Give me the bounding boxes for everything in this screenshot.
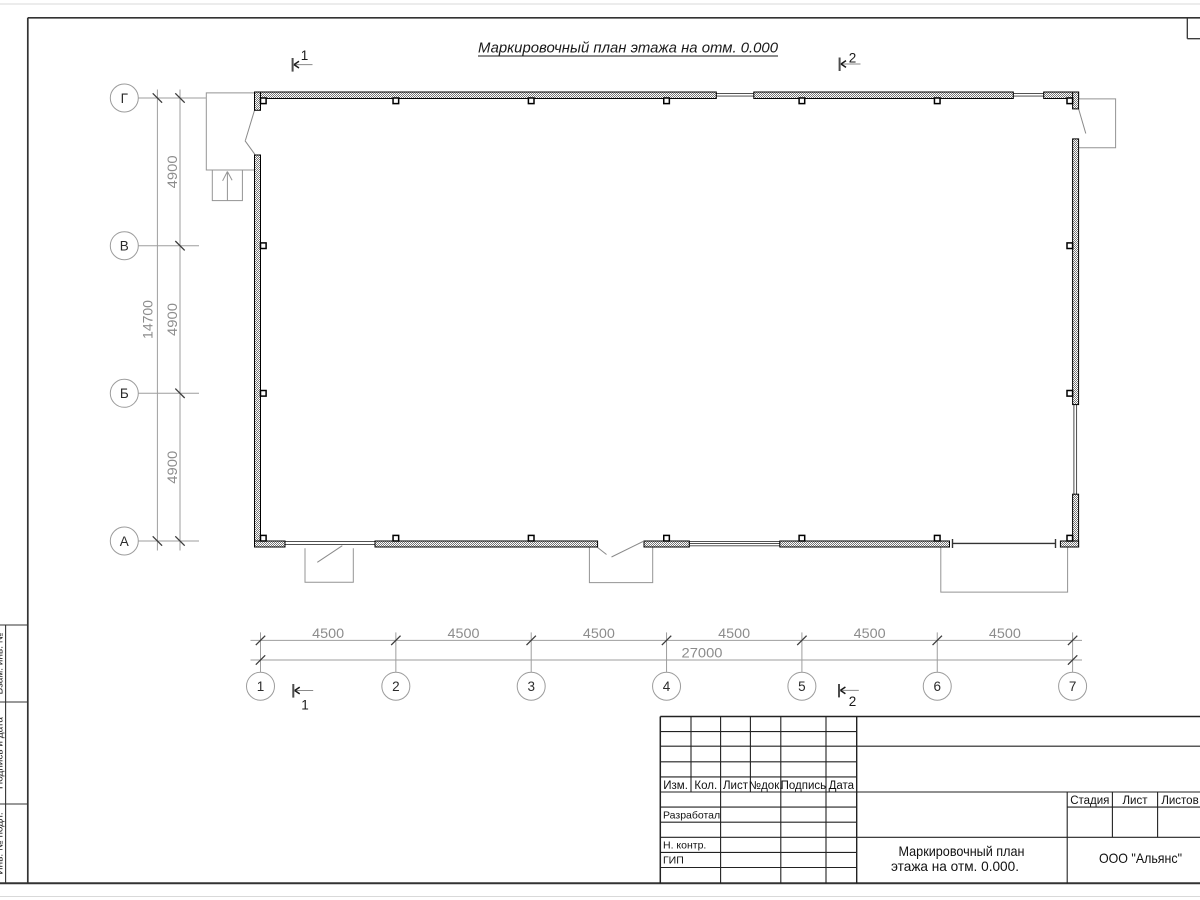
svg-text:5: 5: [798, 679, 806, 694]
svg-text:Лист: Лист: [723, 780, 749, 792]
svg-text:Маркировочный план этажа на от: Маркировочный план этажа на отм. 0.000: [478, 40, 779, 57]
svg-text:6: 6: [933, 679, 941, 694]
svg-text:Б: Б: [120, 386, 129, 401]
svg-text:4: 4: [663, 679, 671, 694]
svg-text:Инв. № подл.: Инв. № подл.: [0, 812, 6, 874]
svg-text:Стадия: Стадия: [1070, 795, 1109, 807]
svg-text:3: 3: [527, 679, 535, 694]
svg-text:№док.: №док.: [749, 780, 783, 792]
svg-text:27000: 27000: [682, 644, 723, 660]
svg-text:4900: 4900: [164, 155, 180, 188]
svg-text:7: 7: [1069, 679, 1077, 694]
svg-text:этажа на отм. 0.000.: этажа на отм. 0.000.: [891, 858, 1019, 874]
svg-text:1: 1: [257, 679, 265, 694]
svg-text:Г: Г: [121, 91, 129, 106]
svg-text:2: 2: [849, 51, 857, 66]
svg-text:Маркировочный план: Маркировочный план: [899, 843, 1025, 859]
svg-text:Кол.: Кол.: [694, 780, 717, 792]
svg-text:Разработал: Разработал: [663, 809, 720, 821]
svg-text:ООО "Альянс": ООО "Альянс": [1099, 850, 1182, 866]
svg-text:4500: 4500: [312, 625, 344, 641]
svg-text:4900: 4900: [164, 450, 180, 483]
svg-text:1: 1: [301, 48, 309, 63]
svg-text:4500: 4500: [989, 625, 1021, 641]
svg-text:Взам. инв. №: Взам. инв. №: [0, 632, 6, 694]
svg-text:1: 1: [301, 698, 309, 713]
svg-text:4500: 4500: [854, 625, 886, 641]
svg-text:Дата: Дата: [829, 780, 855, 792]
svg-text:Лист: Лист: [1123, 795, 1149, 807]
svg-text:2: 2: [849, 694, 857, 709]
svg-text:Н. контр.: Н. контр.: [663, 840, 706, 852]
svg-text:А: А: [120, 534, 129, 549]
svg-text:14700: 14700: [140, 300, 156, 339]
svg-text:2: 2: [392, 679, 400, 694]
svg-text:4500: 4500: [448, 625, 480, 641]
svg-text:В: В: [120, 239, 129, 254]
svg-text:Подпись и дата: Подпись и дата: [0, 717, 6, 789]
svg-text:Листов: Листов: [1161, 795, 1198, 807]
svg-text:4500: 4500: [583, 625, 615, 641]
svg-text:4500: 4500: [718, 625, 750, 641]
svg-text:ГИП: ГИП: [663, 855, 684, 867]
svg-text:Изм.: Изм.: [663, 780, 688, 792]
svg-text:Подпись: Подпись: [781, 780, 827, 792]
svg-text:4900: 4900: [164, 303, 180, 336]
